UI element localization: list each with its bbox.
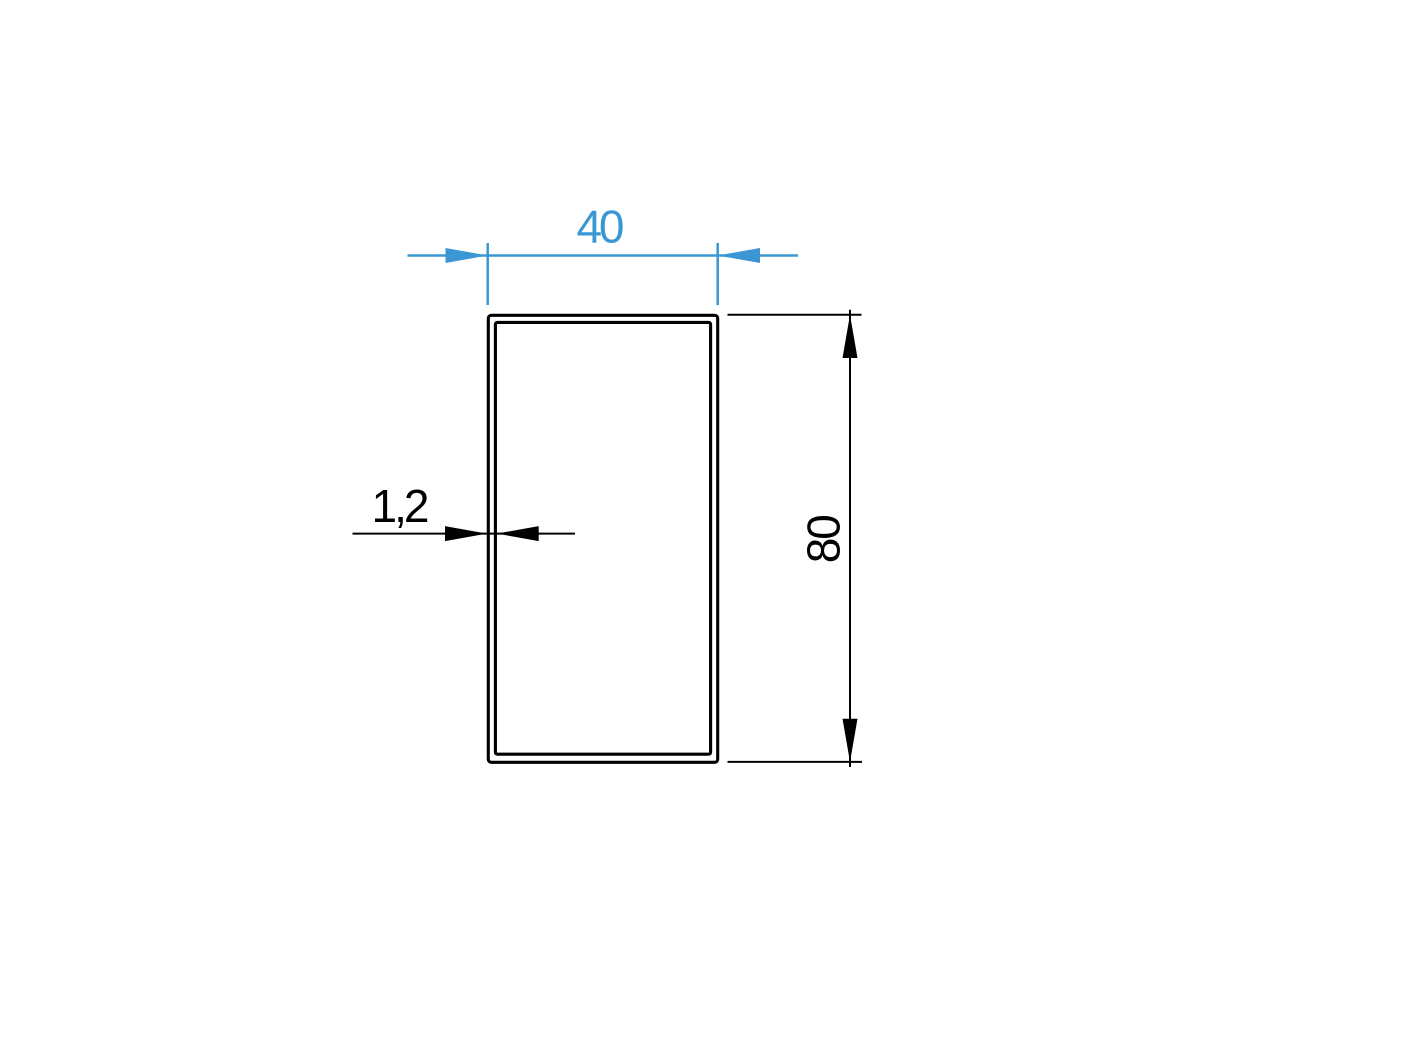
svg-text:80: 80	[798, 514, 850, 563]
svg-text:40: 40	[577, 201, 625, 253]
svg-text:1,2: 1,2	[372, 480, 430, 532]
